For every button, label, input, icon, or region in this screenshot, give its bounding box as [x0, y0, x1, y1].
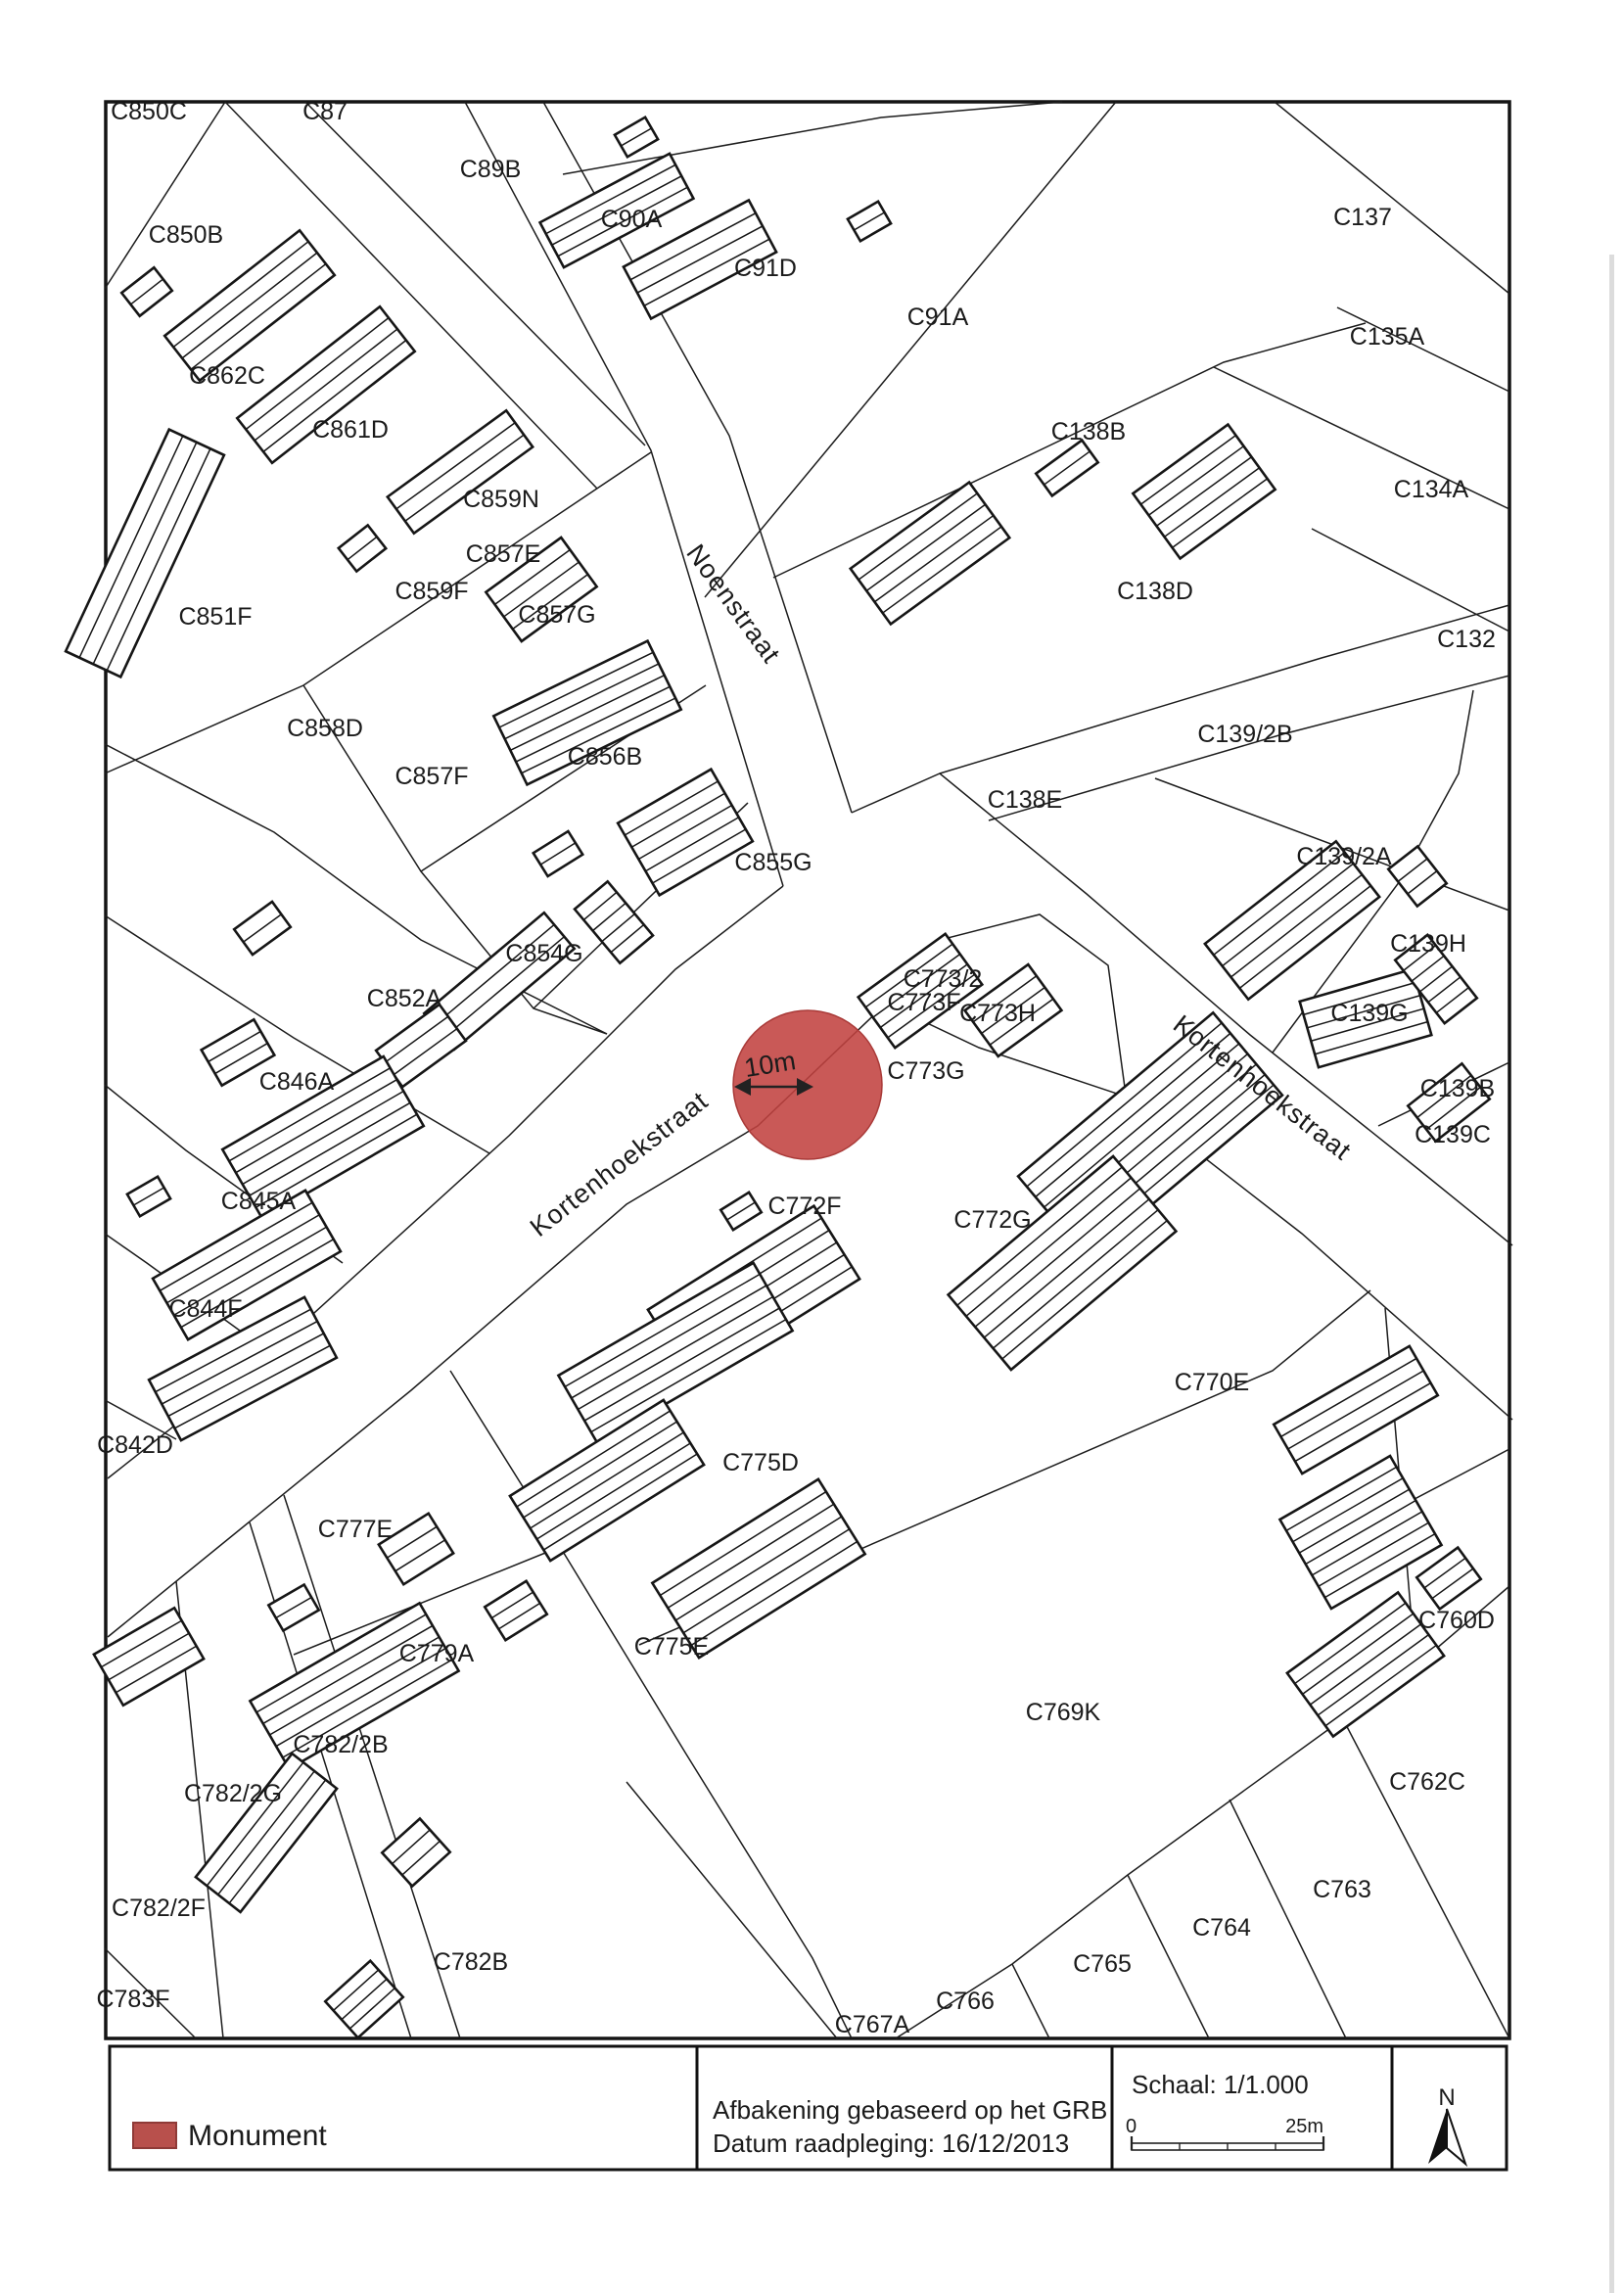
parcel-label: C90A	[601, 206, 663, 233]
parcel-label: C851F	[178, 603, 252, 631]
parcel-label: C861D	[312, 416, 389, 444]
parcel-label: C850B	[149, 221, 223, 249]
legend-box-scale	[1112, 2046, 1392, 2170]
parcel-label: C139/2B	[1197, 721, 1292, 748]
parcel-label: C767A	[835, 2011, 910, 2038]
legend-note-line2: Datum raadpleging: 16/12/2013	[713, 2129, 1069, 2158]
parcel-label: C854G	[505, 940, 582, 967]
parcel-label: C139/2A	[1296, 843, 1392, 870]
parcel-label: C138B	[1051, 418, 1126, 445]
parcel-label: C89B	[460, 156, 522, 183]
parcel-label: C770E	[1175, 1369, 1249, 1396]
parcel-label: C857F	[394, 763, 468, 790]
parcel-label: C769K	[1026, 1699, 1101, 1726]
parcel-label: C775D	[722, 1449, 799, 1476]
parcel-label: C852A	[367, 985, 442, 1012]
legend-scale-label: Schaal: 1/1.000	[1132, 2070, 1309, 2099]
parcel-label: C782/2B	[293, 1731, 388, 1758]
parcel-label: C856B	[568, 743, 642, 771]
parcel-label: C135A	[1350, 323, 1425, 351]
scale-bar-end-label: 25m	[1285, 2116, 1323, 2137]
parcel-label: C138D	[1117, 578, 1193, 605]
parcel-label: C773H	[959, 1000, 1036, 1027]
legend-note-line1: Afbakening gebaseerd op het GRB	[713, 2095, 1107, 2125]
parcel-label: C91D	[734, 255, 797, 282]
parcel-label: C87	[302, 98, 348, 125]
parcel-label: C862C	[189, 362, 265, 390]
parcel-label: C859N	[463, 486, 539, 513]
parcel-label: C844F	[168, 1295, 242, 1323]
parcel-label: C842D	[97, 1431, 173, 1459]
parcel-label: C782B	[434, 1948, 508, 1976]
cadastral-map: 10m C850CC87C89BC850BC90AC91DC91AC137C13…	[0, 0, 1624, 2293]
parcel-label: C858D	[287, 715, 363, 742]
parcel-label: C765	[1073, 1950, 1132, 1978]
parcel-label: C766	[936, 1988, 995, 2015]
parcel-label: C772G	[953, 1206, 1031, 1234]
monument-marker: 10m	[733, 1010, 882, 1159]
parcel-label: C773F	[887, 989, 960, 1016]
parcel-label: C139B	[1420, 1075, 1495, 1102]
parcel-label: C134A	[1394, 476, 1469, 503]
parcel-label: C772F	[767, 1193, 841, 1220]
parcel-label: C775E	[634, 1633, 709, 1661]
parcel-label: C137	[1333, 204, 1392, 231]
parcel-label: C782/2F	[112, 1895, 206, 1922]
parcel-label: C857G	[518, 601, 595, 629]
parcel-label: C138E	[988, 786, 1062, 814]
north-label: N	[1438, 2084, 1455, 2111]
legend-monument-label: Monument	[188, 2120, 327, 2152]
parcel-label: C773G	[887, 1057, 964, 1085]
parcel-label: C782/2G	[184, 1780, 282, 1807]
parcel-label: C91A	[907, 304, 969, 331]
parcel-label: C139H	[1390, 930, 1466, 958]
scale-bar-start-label: 0	[1126, 2116, 1137, 2137]
parcel-label: C859F	[394, 578, 468, 605]
parcel-label: C139C	[1415, 1121, 1491, 1148]
parcel-label: C762C	[1389, 1768, 1465, 1796]
parcel-label: C783F	[96, 1986, 169, 2013]
parcel-label: C139G	[1330, 1000, 1408, 1027]
legend: Monument Afbakening gebaseerd op het GRB…	[110, 2046, 1507, 2170]
parcel-label: C846A	[259, 1068, 335, 1096]
parcel-label: C779A	[399, 1640, 475, 1667]
parcel-label: C850C	[111, 98, 187, 125]
parcel-label: C763	[1313, 1876, 1371, 1903]
parcel-label: C845A	[221, 1188, 297, 1215]
parcel-label: C777E	[318, 1516, 393, 1543]
scan-shadow	[1609, 255, 1614, 2293]
parcel-label: C857E	[466, 540, 540, 568]
parcel-label: C760D	[1418, 1607, 1495, 1634]
parcel-label: C132	[1437, 626, 1496, 653]
cadastral-map-page: 10m C850CC87C89BC850BC90AC91DC91AC137C13…	[0, 0, 1624, 2293]
parcel-label: C855G	[734, 849, 812, 876]
monument-swatch-icon	[133, 2123, 176, 2148]
parcel-label: C764	[1192, 1914, 1251, 1942]
